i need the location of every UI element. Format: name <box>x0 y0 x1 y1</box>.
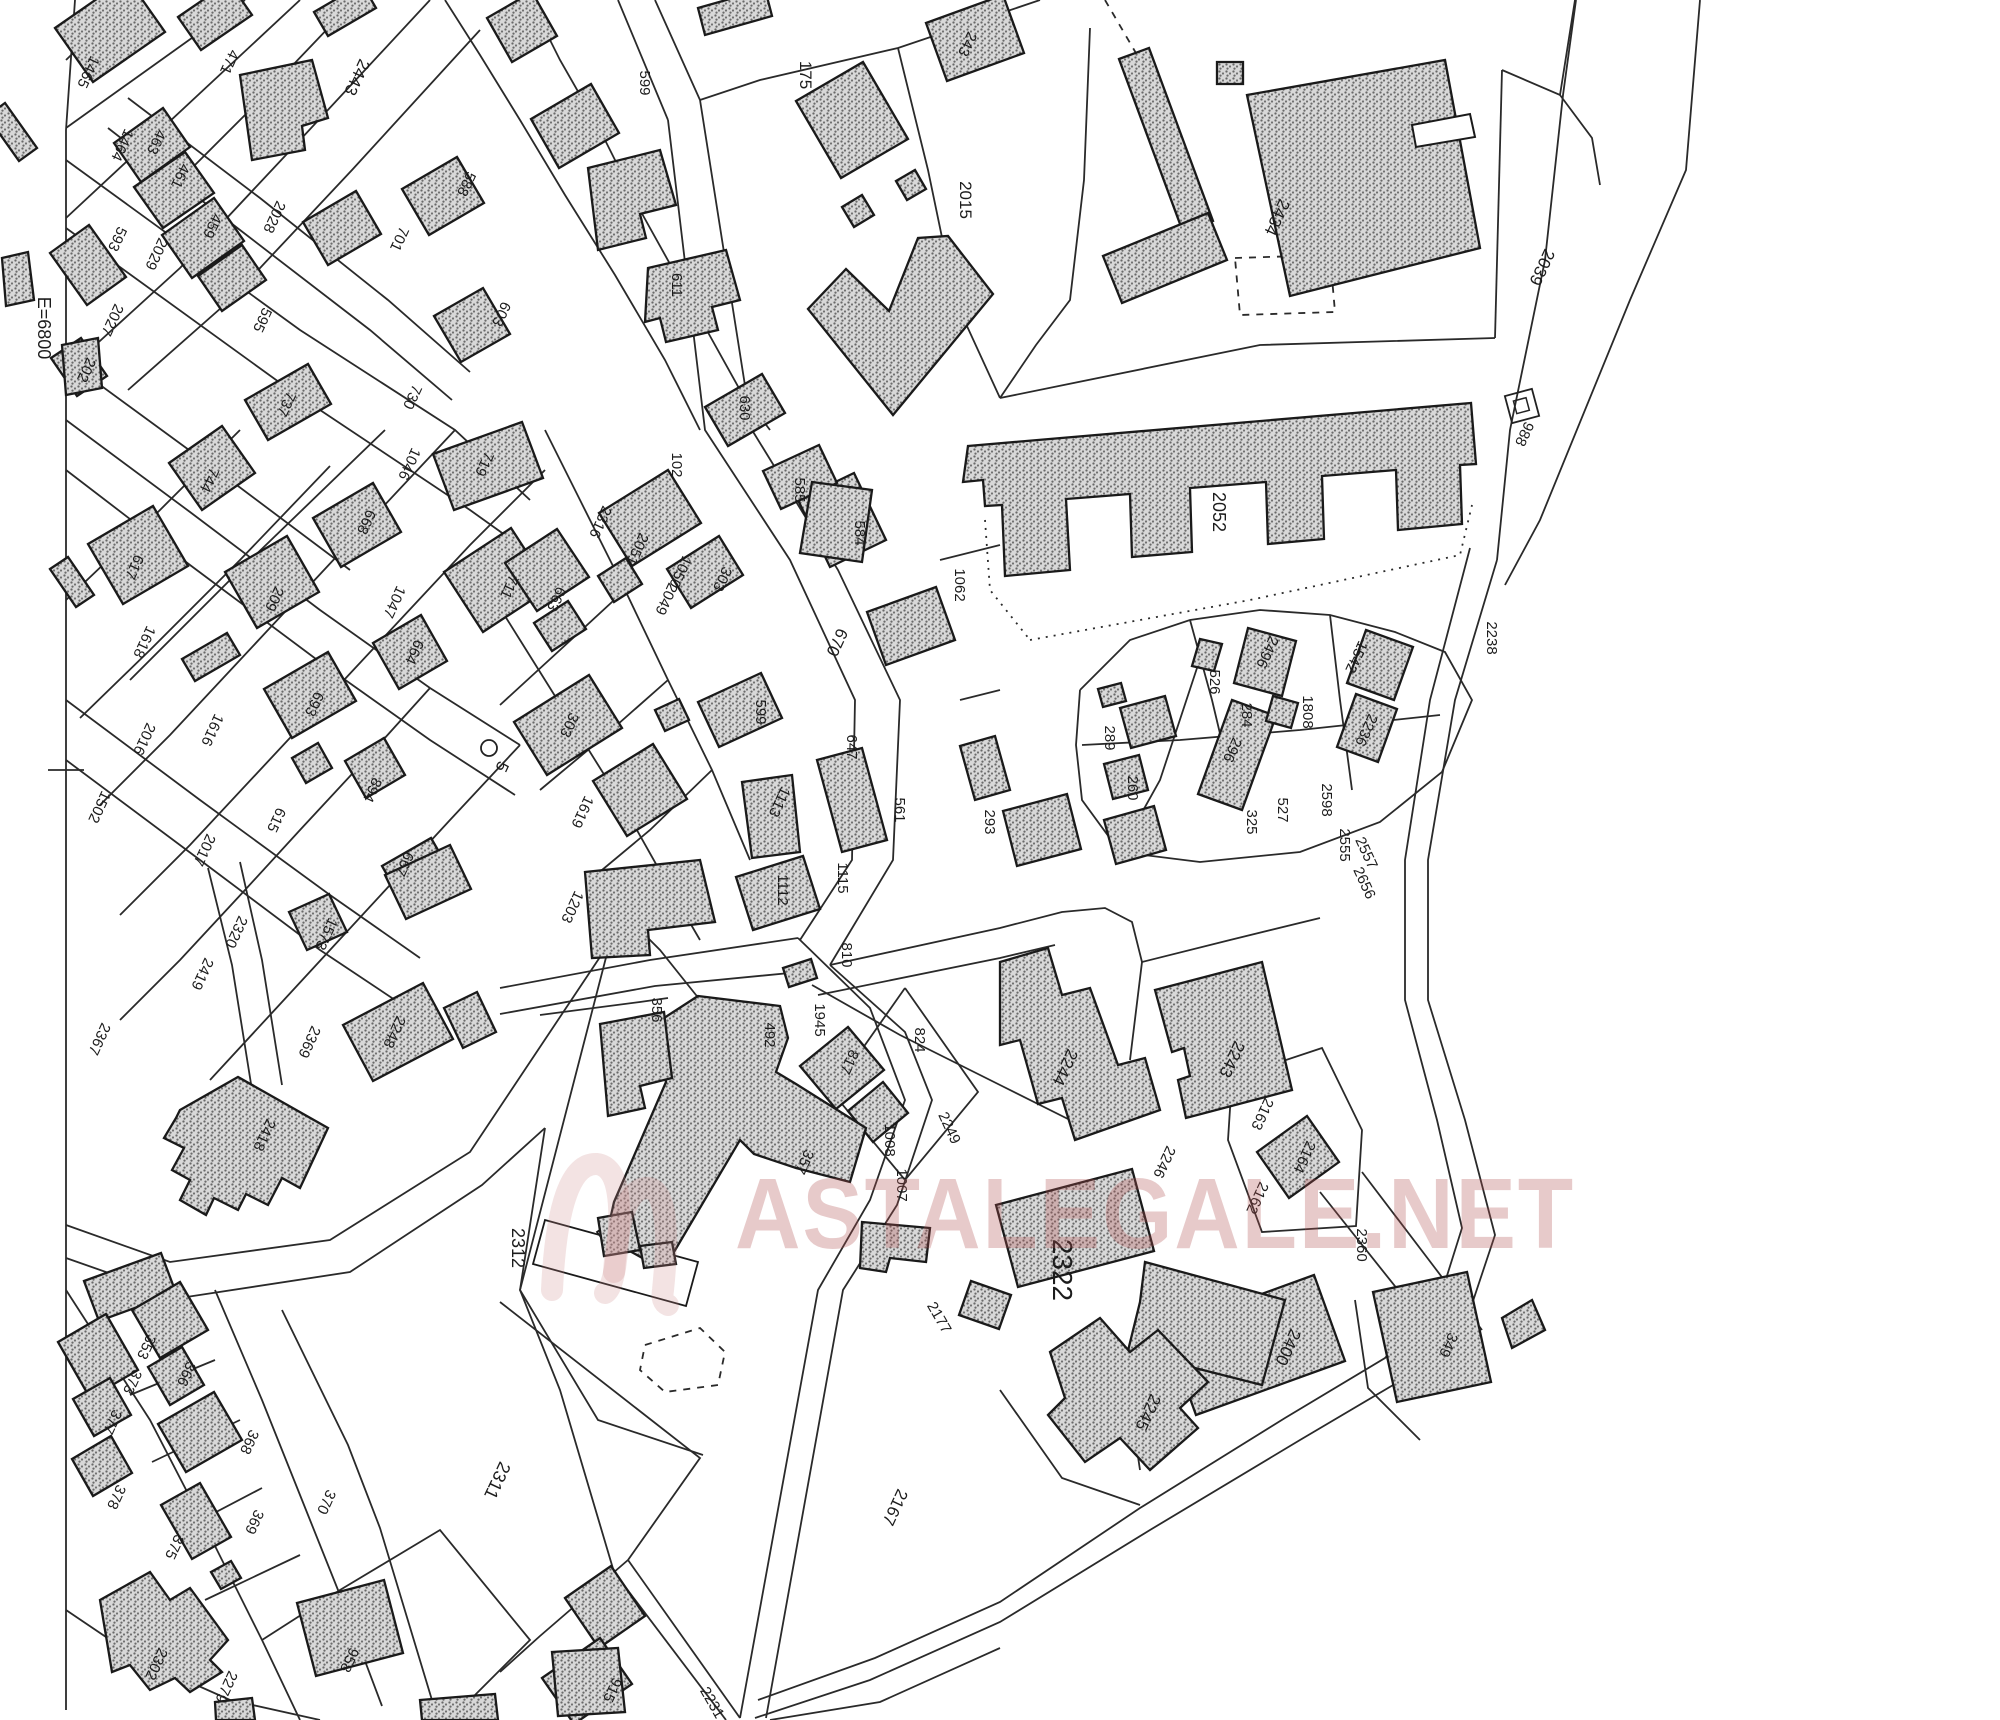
svg-text:325: 325 <box>1243 809 1260 834</box>
svg-text:1808: 1808 <box>1299 695 1316 728</box>
svg-text:2015: 2015 <box>956 181 975 219</box>
svg-text:647: 647 <box>843 734 860 759</box>
svg-text:293: 293 <box>981 809 998 834</box>
svg-text:E=6800: E=6800 <box>34 297 54 360</box>
svg-text:284: 284 <box>1238 702 1255 727</box>
svg-text:1112: 1112 <box>774 874 791 905</box>
svg-text:289: 289 <box>1101 725 1118 750</box>
svg-text:102: 102 <box>668 452 685 477</box>
svg-text:630: 630 <box>736 395 753 420</box>
svg-text:599: 599 <box>752 699 769 724</box>
svg-text:585: 585 <box>791 477 808 502</box>
svg-text:527: 527 <box>1274 797 1291 822</box>
svg-text:526: 526 <box>1206 669 1223 694</box>
svg-text:1945: 1945 <box>811 1003 828 1036</box>
svg-text:1115: 1115 <box>834 862 851 893</box>
svg-text:356: 356 <box>648 997 665 1022</box>
svg-text:ASTALEGALE.NET: ASTALEGALE.NET <box>735 1158 1575 1270</box>
svg-text:584: 584 <box>851 520 868 545</box>
svg-text:2052: 2052 <box>1209 492 1229 532</box>
svg-text:599: 599 <box>636 70 653 95</box>
svg-text:2238: 2238 <box>1483 621 1500 654</box>
svg-text:2598: 2598 <box>1318 783 1335 816</box>
svg-text:2555: 2555 <box>1336 828 1353 861</box>
svg-text:260: 260 <box>1124 775 1141 800</box>
svg-text:561: 561 <box>891 797 908 822</box>
svg-text:611: 611 <box>668 273 685 297</box>
svg-text:1062: 1062 <box>951 568 968 601</box>
svg-text:1008: 1008 <box>881 1123 898 1156</box>
svg-text:824: 824 <box>911 1027 928 1052</box>
svg-text:2312: 2312 <box>508 1228 528 1268</box>
svg-text:175: 175 <box>796 61 815 89</box>
svg-text:492: 492 <box>761 1022 778 1047</box>
svg-text:810: 810 <box>838 942 855 967</box>
